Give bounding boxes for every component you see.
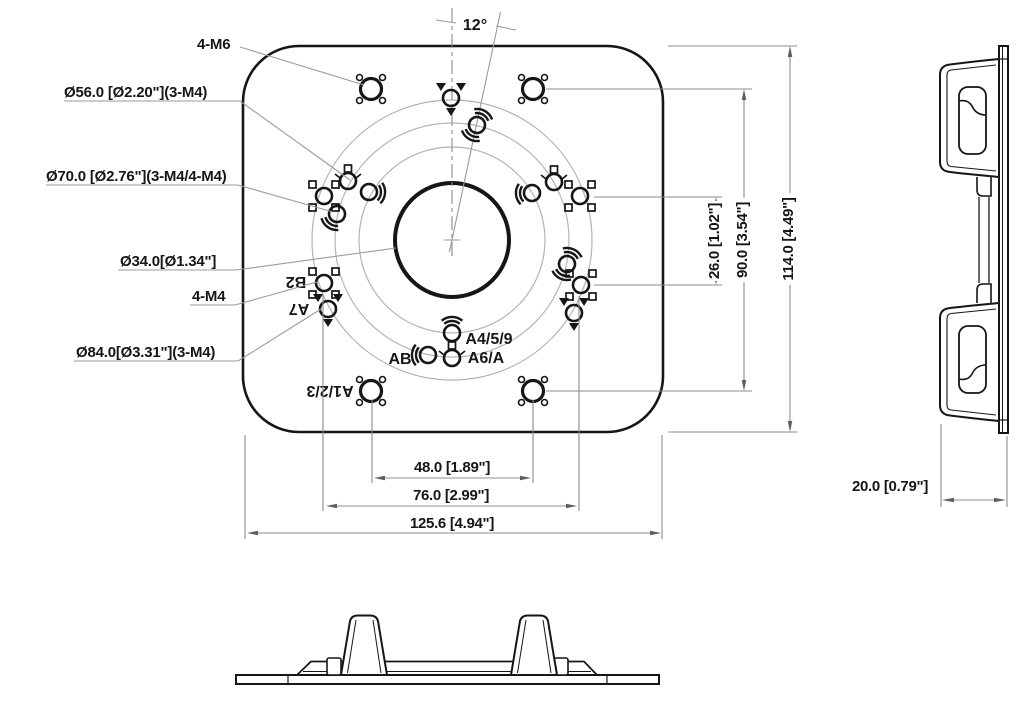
side-connector	[979, 197, 989, 283]
side-dimension: 20.0 [0.79"]	[852, 424, 1007, 507]
dim-76: 76.0 [2.99"]	[413, 487, 489, 504]
callout-d34: Ø34.0[Ø1.34"]	[120, 253, 216, 270]
technical-drawing-page: B2 A7 A1/2/3 AB A4/5/9 A6/A 4-M6 Ø56.0 […	[0, 0, 1024, 702]
angle-label: 12°	[463, 17, 487, 34]
dim-114: 114.0 [4.49"]	[780, 197, 797, 281]
dim-26: 26.0 [1.02"]	[706, 203, 723, 279]
callout-4-m6: 4-M6	[197, 36, 230, 53]
port-label-a7: A7	[289, 300, 310, 317]
dim-20: 20.0 [0.79"]	[852, 478, 928, 495]
angle-tick-right	[496, 26, 516, 30]
port-label-a6a: A6/A	[468, 350, 505, 367]
bottom-post-left	[327, 616, 387, 676]
bottom-post-right	[511, 616, 568, 676]
side-bracket-bottom	[940, 284, 999, 421]
bottom-view	[236, 616, 659, 685]
angle-tick-left	[436, 20, 456, 23]
front-view: B2 A7 A1/2/3 AB A4/5/9 A6/A 4-M6 Ø56.0 […	[46, 8, 797, 539]
callout-d70: Ø70.0 [Ø2.76"](3-M4/4-M4)	[46, 168, 227, 185]
side-bracket-top	[940, 59, 999, 196]
port-label-a459: A4/5/9	[465, 331, 512, 348]
drawing-canvas: B2 A7 A1/2/3 AB A4/5/9 A6/A 4-M6 Ø56.0 […	[0, 0, 1024, 702]
port-label-ab: AB	[388, 351, 411, 368]
callout-d84: Ø84.0[Ø3.31"](3-M4)	[76, 344, 215, 361]
callout-d56: Ø56.0 [Ø2.20"](3-M4)	[64, 84, 207, 101]
dim-125: 125.6 [4.94"]	[410, 515, 494, 532]
port-label-a123: A1/2/3	[306, 382, 353, 399]
dim-90: 90.0 [3.54"]	[734, 202, 751, 278]
side-plate-bar	[999, 46, 1008, 433]
side-view: 20.0 [0.79"]	[852, 46, 1008, 507]
dim-48: 48.0 [1.89"]	[414, 459, 490, 476]
callout-4-m4: 4-M4	[192, 288, 226, 305]
bottom-base-plate	[236, 675, 659, 684]
